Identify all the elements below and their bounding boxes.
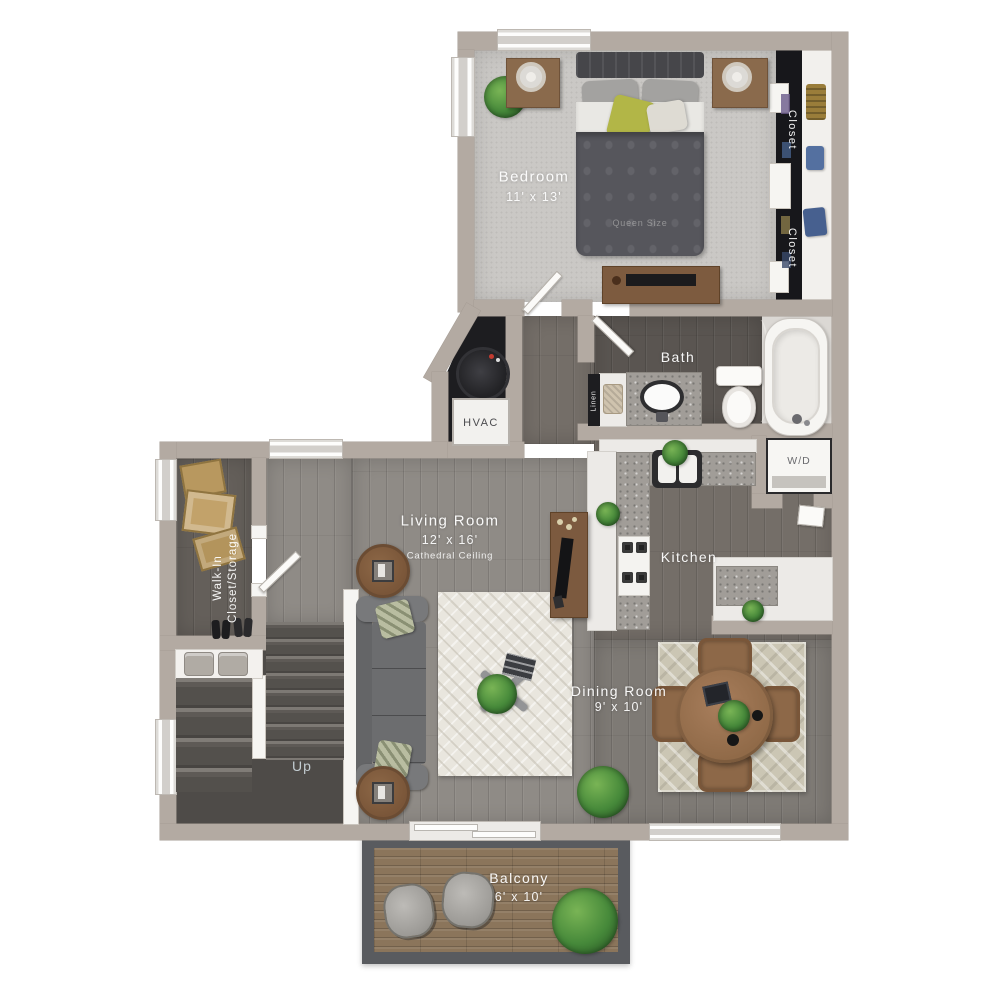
candle xyxy=(557,519,563,525)
washer-dryer-drum xyxy=(772,476,826,488)
kitchen-plant xyxy=(662,440,688,466)
stove-burner xyxy=(636,572,647,583)
dining-room-dims: 9' x 10' xyxy=(595,700,643,714)
dining-plant xyxy=(577,766,629,818)
wall-bedroom-bottom xyxy=(562,300,592,316)
walkin-label: Walk-In Closet/Storage xyxy=(211,533,241,623)
water-heater xyxy=(459,350,507,398)
shoes xyxy=(243,618,253,638)
water-heater-valve xyxy=(496,358,500,362)
stove-burner xyxy=(622,572,633,583)
kitchen-label: Kitchen xyxy=(661,549,718,565)
wall-bottom xyxy=(540,824,650,840)
walkin-window xyxy=(156,460,176,520)
candle xyxy=(566,524,572,530)
living-room-dims: 12' x 16' xyxy=(422,533,479,547)
stair-rail xyxy=(253,676,265,758)
wall-bath-left xyxy=(578,316,594,362)
stairs-up-label: Up xyxy=(292,758,312,774)
toilet-bowl xyxy=(722,386,756,428)
walkin-door-jamb xyxy=(252,526,266,538)
bath-faucet xyxy=(656,412,668,422)
kitchen-bar-counter xyxy=(716,566,778,606)
stove-burner xyxy=(622,542,633,553)
wall-walkin-right xyxy=(252,594,266,638)
table-lamp xyxy=(722,62,752,92)
walkin-label-line2: Closet/Storage xyxy=(226,533,241,623)
walkin-label-line1: Walk-In xyxy=(211,533,226,623)
laundry-door xyxy=(797,505,825,528)
wall-laundry-jamb xyxy=(752,494,782,508)
closet-label: Closet xyxy=(786,228,798,268)
centerpiece-plant xyxy=(718,700,750,732)
balcony-plant xyxy=(552,888,618,954)
wall-bottom xyxy=(780,824,848,840)
table-decor xyxy=(727,734,739,746)
wall-hvac-left xyxy=(432,372,448,452)
closet-label: Closet xyxy=(786,110,798,150)
bed-size-note: Queen Size xyxy=(612,218,667,228)
folded-clothes xyxy=(803,207,828,237)
bathtub-basin xyxy=(772,328,820,424)
folded-clothes xyxy=(806,146,824,170)
bedroom-label: Bedroom xyxy=(499,169,570,186)
closet-door-track xyxy=(770,164,790,208)
bar-plant xyxy=(742,600,764,622)
stairs-lower-flight xyxy=(176,678,252,792)
tub-handle xyxy=(804,420,810,426)
bath-label: Bath xyxy=(661,349,695,365)
bedroom-side-window xyxy=(452,58,474,136)
living-room-label: Living Room xyxy=(401,513,500,530)
bath-sink xyxy=(640,380,684,414)
storage-basket xyxy=(218,652,248,676)
linen-label: Linen xyxy=(591,390,598,411)
bedroom-dims: 11' x 13' xyxy=(506,190,562,204)
wall-right xyxy=(832,32,848,838)
dining-room-label: Dining Room xyxy=(571,683,667,699)
hall-plant xyxy=(596,502,620,526)
stair-landing-floor xyxy=(266,458,352,624)
candle xyxy=(572,517,577,522)
stove-burner xyxy=(636,542,647,553)
wall-walkin-right xyxy=(252,458,266,528)
dresser-decor xyxy=(612,276,621,285)
remote xyxy=(378,786,385,799)
folded-clothes xyxy=(806,84,826,120)
wall-bedroom-bottom xyxy=(474,300,524,316)
remote xyxy=(378,564,385,577)
coffee-table-plant xyxy=(477,674,517,714)
bed-duvet xyxy=(576,132,704,256)
floor-plan: Balcony 6' x 10' xyxy=(0,0,1000,1000)
living-room-note: Cathedral Ceiling xyxy=(407,551,493,562)
wall-bottom xyxy=(160,824,410,840)
stairwell-window xyxy=(156,720,176,794)
bed-headboard xyxy=(576,52,704,78)
water-heater-valve xyxy=(489,354,494,359)
bedroom-tv xyxy=(626,274,696,286)
linen-basket xyxy=(603,384,623,414)
kitchen-cabinet-left xyxy=(588,452,616,630)
table-decor xyxy=(752,710,763,721)
tub-faucet xyxy=(792,414,802,424)
sliding-door-panel xyxy=(472,831,536,838)
storage-basket xyxy=(184,652,214,676)
bedroom-window xyxy=(498,30,590,50)
table-lamp xyxy=(516,62,546,92)
living-room-window xyxy=(270,440,342,458)
hvac-label: HVAC xyxy=(463,417,499,429)
sliding-door-panel xyxy=(414,824,478,831)
dining-window xyxy=(650,824,780,840)
balcony-label: Balcony xyxy=(489,870,549,886)
balcony-dims: 6' x 10' xyxy=(495,890,543,904)
laundry-label: W/D xyxy=(787,455,810,467)
stairs-upper-flight xyxy=(266,622,344,760)
sofa-back xyxy=(356,598,372,790)
